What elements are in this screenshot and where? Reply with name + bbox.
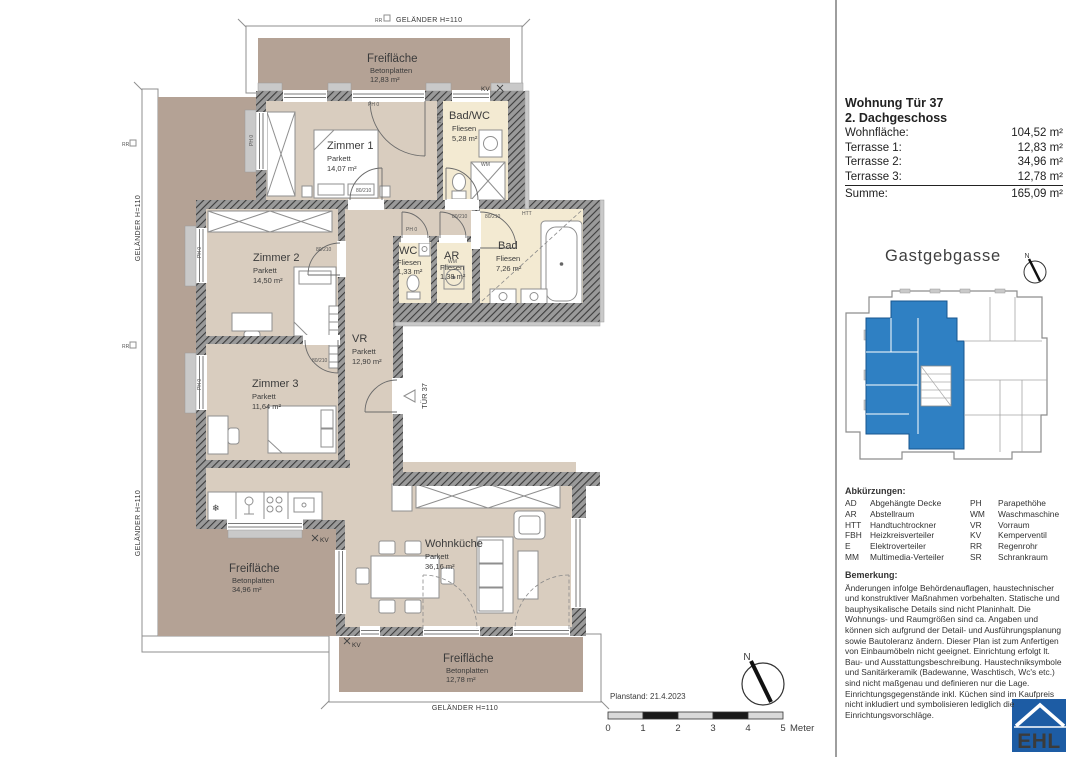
area-row: Wohnfläche:104,52 m²: [845, 126, 1063, 141]
terrace-left-area: 34,96 m²: [232, 585, 262, 594]
abbr-code: RR: [970, 541, 998, 552]
north-compass-icon: N: [742, 652, 784, 705]
site-plan: N: [846, 253, 1047, 459]
abbr-term: Vorraum: [998, 520, 1067, 531]
area-row: Terrasse 1:12,83 m²: [845, 141, 1063, 156]
room-floor-wohnkueche: Parkett: [425, 552, 450, 561]
remark-text: Änderungen infolge Behördenauflagen, hau…: [845, 583, 1065, 721]
entrance-door-label: TÜR 37: [420, 383, 429, 409]
abbr-term: Schrankraum: [998, 552, 1067, 563]
abbr-code: SR: [970, 552, 998, 563]
abbr-term: Abstellraum: [870, 509, 970, 520]
room-area-zimmer1: 14,07 m²: [327, 164, 357, 173]
area-label: Wohnfläche:: [845, 126, 909, 141]
abbr-term: Handtuchtrockner: [870, 520, 970, 531]
abbr-term: Abgehängte Decke: [870, 498, 970, 509]
scale-tick-2: 2: [675, 723, 680, 734]
abbr-code: KV: [970, 530, 998, 541]
remark-block: Bemerkung: Änderungen infolge Behördenau…: [845, 570, 1065, 720]
room-floor-zimmer3: Parkett: [252, 392, 277, 401]
abbreviations-legend: Abkürzungen: ADAbgehängte DeckePHParapet…: [845, 486, 1067, 563]
fridge-icon: ❄: [212, 503, 220, 513]
kv-mark-top: KV: [481, 86, 490, 93]
abbr-code: AD: [845, 498, 870, 509]
door-dim-3: 80/210: [316, 247, 332, 253]
railing-label-bottom: GELÄNDER H=110: [432, 704, 498, 712]
scale-tick-5: 5: [780, 723, 785, 734]
scale-unit: Meter: [790, 723, 814, 734]
abbr-term: Kemperventil: [998, 530, 1067, 541]
room-label-zimmer2: Zimmer 2: [253, 252, 299, 264]
room-area-badwc: 5,28 m²: [452, 134, 478, 143]
room-area-zimmer2: 14,50 m²: [253, 276, 283, 285]
room-area-wohnkueche: 36,16 m²: [425, 562, 455, 571]
room-label-badwc: Bad/WC: [449, 110, 490, 122]
scale-tick-0: 0: [605, 723, 610, 734]
terrace-top-label: Freifläche: [367, 53, 418, 65]
area-value: 104,52 m²: [1011, 126, 1063, 141]
area-label: Terrasse 2:: [845, 155, 902, 170]
abbr-term: Heizkreisverteiler: [870, 530, 970, 541]
room-label-zimmer1: Zimmer 1: [327, 140, 373, 152]
kv-mark-mid: KV: [320, 537, 329, 544]
terrace-top-material: Betonplatten: [370, 66, 412, 75]
north-letter: N: [743, 652, 750, 663]
abbr-term: Waschmaschine: [998, 509, 1067, 520]
door-dim-1: 80/210: [356, 188, 372, 194]
terrace-top-area: 12,83 m²: [370, 75, 400, 84]
ph-mark-5: PH 0: [406, 227, 417, 233]
terrace-left-label: Freifläche: [229, 563, 280, 575]
abbr-term: Parapethöhe: [998, 498, 1067, 509]
area-label: Terrasse 3:: [845, 170, 902, 185]
abbreviations-title: Abkürzungen:: [845, 486, 1067, 496]
abbr-code: HTT: [845, 520, 870, 531]
door-dim-4: 80/210: [485, 214, 501, 220]
room-floor-zimmer1: Parkett: [327, 154, 352, 163]
street-name: Gastgebgasse: [845, 247, 1041, 266]
room-floor-wc: Fliesen: [397, 258, 421, 267]
total-row: Summe:165,09 m²: [845, 185, 1063, 202]
htt-mark-bad: HTT: [522, 211, 532, 217]
terrace-bottom-area: 12,78 m²: [446, 675, 476, 684]
abbr-code: E: [845, 541, 870, 552]
entrance-arrow-icon: [404, 390, 415, 402]
floorplan-page: ❄: [0, 0, 1071, 757]
abbr-code: MM: [845, 552, 870, 563]
room-label-vr: VR: [352, 333, 367, 345]
abbr-code: VR: [970, 520, 998, 531]
ph-mark-3: PH 0: [197, 379, 203, 390]
railing-label-top: GELÄNDER H=110: [396, 16, 462, 24]
area-row: Terrasse 3:12,78 m²: [845, 170, 1063, 185]
plan-date: Planstand: 21.4.2023: [610, 692, 686, 701]
total-label: Summe:: [845, 187, 888, 202]
room-floor-bad: Fliesen: [496, 254, 520, 263]
door-dim-5: 80/210: [312, 358, 328, 364]
room-area-ar: 1,38 m²: [440, 272, 466, 281]
area-value: 12,83 m²: [1018, 141, 1063, 156]
scale-tick-3: 3: [710, 723, 715, 734]
ph-mark-4: PH 0: [368, 102, 379, 108]
apartment-info-panel: Wohnung Tür 37 2. Dachgeschoss Wohnfläch…: [845, 96, 1063, 202]
room-floor-zimmer2: Parkett: [253, 266, 278, 275]
abbreviations-grid: ADAbgehängte DeckePHParapethöhe ARAbstel…: [845, 498, 1067, 563]
room-floor-badwc: Fliesen: [452, 124, 476, 133]
area-value: 12,78 m²: [1018, 170, 1063, 185]
total-value: 165,09 m²: [1011, 187, 1063, 202]
abbr-code: FBH: [845, 530, 870, 541]
terrace-left-material: Betonplatten: [232, 576, 274, 585]
room-label-wc: WC: [399, 245, 417, 257]
abbr-term: Elektroverteiler: [870, 541, 970, 552]
area-row: Terrasse 2:34,96 m²: [845, 155, 1063, 170]
kv-mark-bottom: KV: [352, 642, 361, 649]
abbr-code: AR: [845, 509, 870, 520]
wm-mark-badwc: WM: [481, 162, 490, 168]
scale-bar: 0 1 2 3 4 5 Meter: [605, 712, 814, 734]
terrace-bottom-material: Betonplatten: [446, 666, 488, 675]
rr-mark-top: RR: [375, 18, 383, 24]
logo-text: EHL: [1017, 730, 1061, 753]
room-area-wc: 1,33 m²: [397, 267, 423, 276]
room-label-bad: Bad: [498, 240, 518, 252]
abbr-term: Multimedia-Verteiler: [870, 552, 970, 563]
area-value: 34,96 m²: [1018, 155, 1063, 170]
railing-label-left-1: GELÄNDER H=110: [134, 195, 142, 261]
rr-mark-left-1: RR: [122, 142, 130, 148]
door-dim-2: 80/210: [452, 214, 468, 220]
rr-mark-left-2: RR: [122, 344, 130, 350]
abbr-term: Regenrohr: [998, 541, 1067, 552]
room-label-wohnkueche: Wohnküche: [425, 538, 483, 550]
apartment-floor: 2. Dachgeschoss: [845, 111, 1063, 126]
htt-mark-badwc: HTT: [437, 113, 443, 123]
room-floor-vr: Parkett: [352, 347, 377, 356]
plan-footer: Planstand: 21.4.2023 0 1 2 3 4 5 Meter N: [605, 652, 814, 734]
abbr-code: PH: [970, 498, 998, 509]
area-label: Terrasse 1:: [845, 141, 902, 156]
room-area-vr: 12,90 m²: [352, 357, 382, 366]
room-area-zimmer3: 11,64 m²: [252, 402, 282, 411]
ph-mark-1: PH 0: [249, 135, 255, 146]
ph-mark-2: PH 0: [197, 247, 203, 258]
remark-title: Bemerkung:: [845, 570, 1065, 581]
terrace-bottom-label: Freifläche: [443, 653, 494, 665]
scale-tick-1: 1: [640, 723, 645, 734]
abbr-code: WM: [970, 509, 998, 520]
room-area-bad: 7,26 m²: [496, 264, 522, 273]
railing-label-left-2: GELÄNDER H=110: [134, 490, 142, 556]
apartment-title: Wohnung Tür 37: [845, 96, 1063, 111]
wm-mark-ar: WM: [448, 259, 457, 265]
room-label-zimmer3: Zimmer 3: [252, 378, 298, 390]
scale-tick-4: 4: [745, 723, 750, 734]
